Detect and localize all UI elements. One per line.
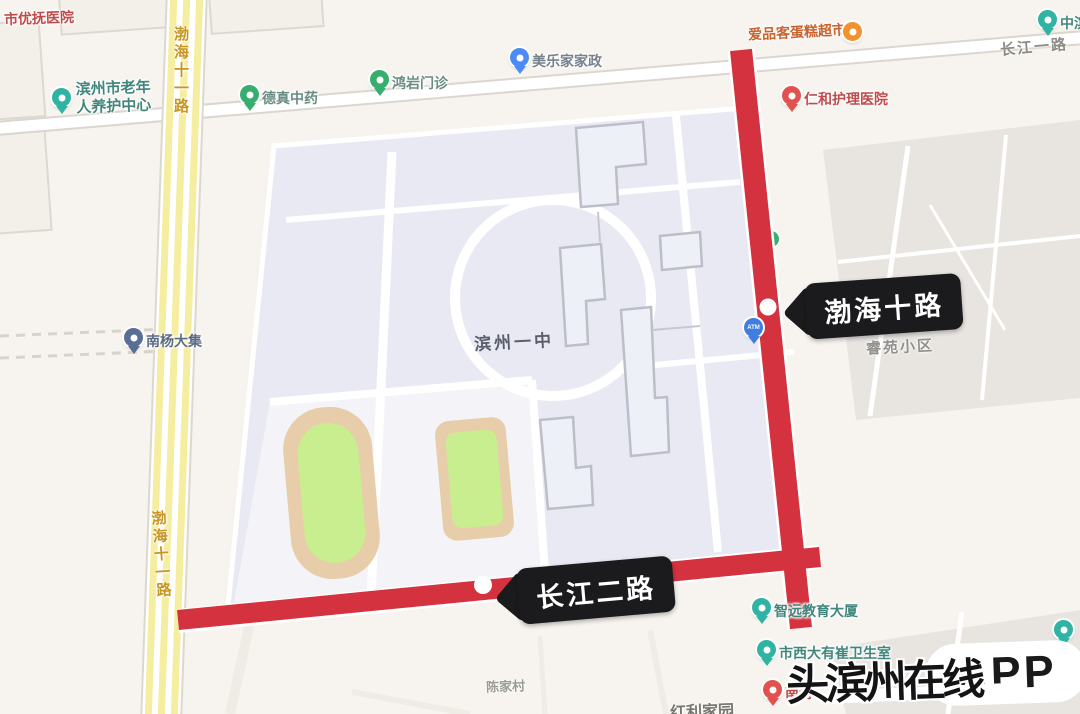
pin-dezhen-pharmacy[interactable]: [240, 85, 259, 104]
callout-bohai-10-label: 渤海十路: [804, 273, 964, 340]
school-campus: [228, 108, 798, 606]
label-hongyan-clinic: 鸿岩门诊: [392, 73, 448, 93]
residential-block-east: [823, 120, 1080, 420]
pin-zhongbin[interactable]: [1038, 10, 1057, 29]
pin-unlabeled-east[interactable]: [1054, 620, 1073, 639]
school-name-label: 滨州一中: [473, 326, 554, 355]
label-zhiyuan-education-building: 智远教育大厦: [774, 601, 858, 621]
pin-zhiyuan-education-building[interactable]: [752, 598, 771, 617]
area-label-hongli: 红利家园: [670, 697, 735, 714]
road-label-bohai-11-top: 渤海十一路: [170, 26, 191, 116]
label-zhongbin: 中滨: [1060, 13, 1080, 33]
label-renhe-nursing-hospital: 仁和护理医院: [804, 89, 888, 109]
label-meilejia-housekeeping: 美乐家家政: [532, 51, 602, 71]
atm-pin-text: ATM: [744, 318, 763, 337]
watermark-site-name: 头滨州在线: [785, 645, 982, 714]
pin-hongyan-clinic[interactable]: [370, 70, 389, 89]
label-elder-care-line2: 人养护中心: [76, 97, 152, 118]
pin-atm[interactable]: ATM: [744, 318, 763, 337]
pin-nanhai[interactable]: [763, 680, 782, 699]
area-label-chenjiacun: 陈家村: [486, 675, 526, 695]
pin-cake-market[interactable]: [843, 22, 862, 41]
map-screenshot: 市优抚医院 滨州市老年 人养护中心 德真中药 鸿岩门诊 美乐家家政 爱品客蛋糕超…: [0, 0, 1080, 714]
label-youfu-hospital: 市优抚医院: [4, 7, 75, 29]
pin-elder-care-center[interactable]: [52, 88, 71, 107]
pin-nanyang-market[interactable]: [124, 328, 143, 347]
pin-meilejia-housekeeping[interactable]: [510, 48, 529, 67]
label-nanyang-market: 南杨大集: [146, 331, 202, 351]
label-dezhen-pharmacy: 德真中药: [262, 88, 318, 108]
marker-dot-bohai-10[interactable]: [760, 299, 777, 316]
pin-renhe-nursing-hospital[interactable]: [782, 86, 801, 105]
marker-dot-changjiang-2[interactable]: [474, 576, 492, 594]
label-elder-care-center: 滨州市老年 人养护中心: [75, 79, 151, 118]
pin-shixi-health-station[interactable]: [757, 640, 776, 659]
area-label-ruiyuan: 睿苑小区: [865, 334, 934, 359]
